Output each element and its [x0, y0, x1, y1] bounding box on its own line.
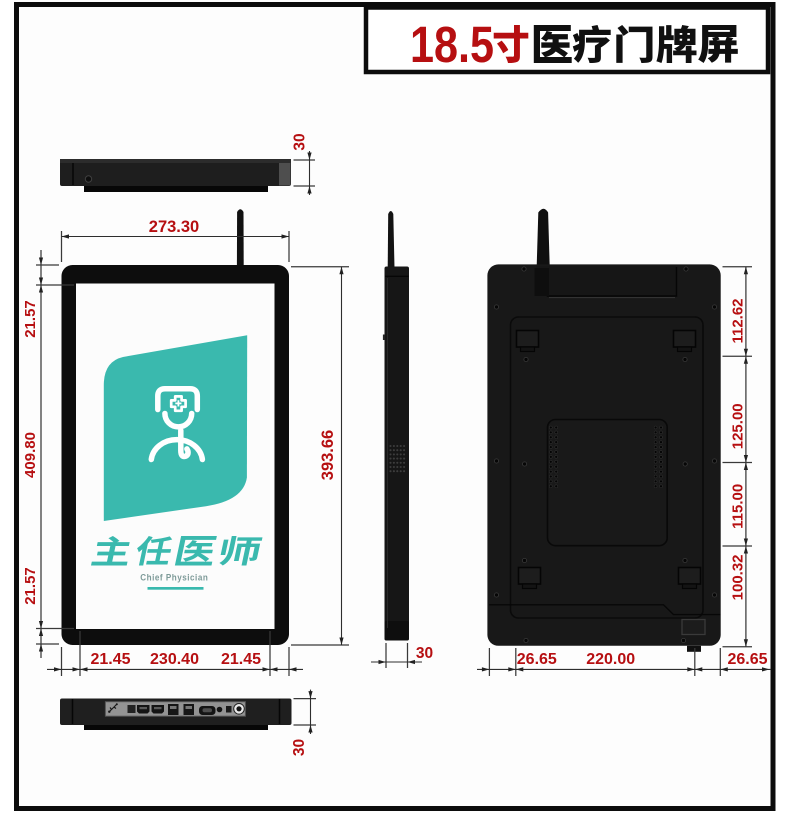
svg-text:Chief Physician: Chief Physician	[140, 573, 208, 584]
svg-text:409.80: 409.80	[22, 432, 39, 478]
svg-text:230.40: 230.40	[150, 651, 199, 668]
svg-text:100.32: 100.32	[730, 554, 747, 600]
svg-text:21.57: 21.57	[22, 300, 39, 338]
svg-text:115.00: 115.00	[730, 484, 747, 529]
svg-text:220.00: 220.00	[586, 651, 635, 668]
svg-text:18.5: 18.5	[410, 16, 494, 73]
svg-text:273.30: 273.30	[149, 218, 199, 236]
svg-text:21.45: 21.45	[221, 651, 261, 668]
svg-text:26.65: 26.65	[727, 651, 767, 668]
svg-text:21.57: 21.57	[22, 567, 39, 605]
svg-text:26.65: 26.65	[517, 651, 557, 668]
svg-text:30: 30	[416, 645, 433, 662]
svg-text:112.62: 112.62	[730, 298, 747, 343]
svg-text:125.00: 125.00	[730, 403, 747, 449]
svg-text:21.45: 21.45	[90, 651, 130, 668]
svg-text:30: 30	[291, 739, 308, 756]
svg-text:30: 30	[292, 133, 309, 150]
svg-text:393.66: 393.66	[319, 430, 337, 480]
